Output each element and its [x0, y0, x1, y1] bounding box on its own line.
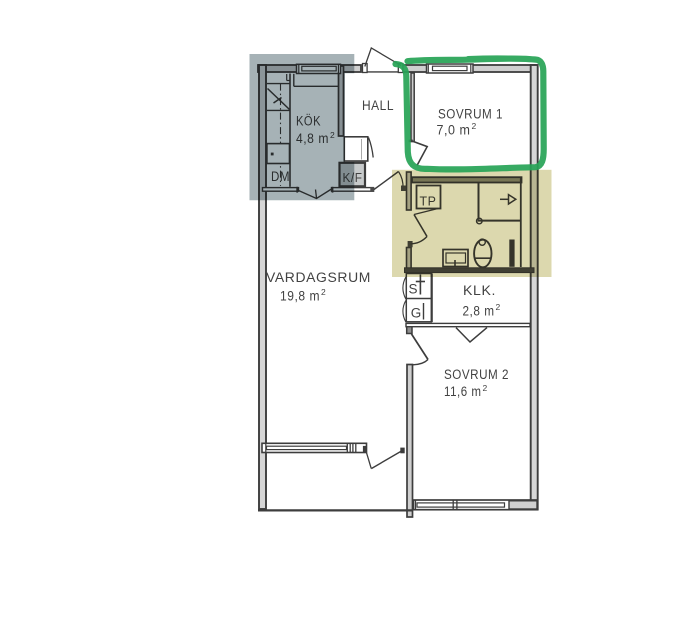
svg-text:SOVRUM 2: SOVRUM 2 — [444, 367, 509, 382]
svg-text:G: G — [411, 305, 422, 320]
svg-text:2,8 m: 2,8 m — [463, 304, 495, 319]
svg-text:7,0 m: 7,0 m — [437, 123, 471, 138]
svg-text:KLK.: KLK. — [463, 283, 496, 298]
svg-text:2: 2 — [496, 302, 501, 312]
svg-text:2: 2 — [483, 383, 488, 393]
svg-text:HALL: HALL — [362, 98, 394, 113]
svg-text:19,8 m: 19,8 m — [280, 289, 320, 304]
svg-text:VARDAGSRUM: VARDAGSRUM — [266, 270, 371, 285]
svg-text:SOVRUM 1: SOVRUM 1 — [438, 107, 503, 122]
svg-text:2: 2 — [321, 287, 326, 297]
svg-text:2: 2 — [472, 121, 477, 131]
svg-text:11,6 m: 11,6 m — [444, 384, 482, 399]
svg-text:S: S — [409, 282, 419, 297]
